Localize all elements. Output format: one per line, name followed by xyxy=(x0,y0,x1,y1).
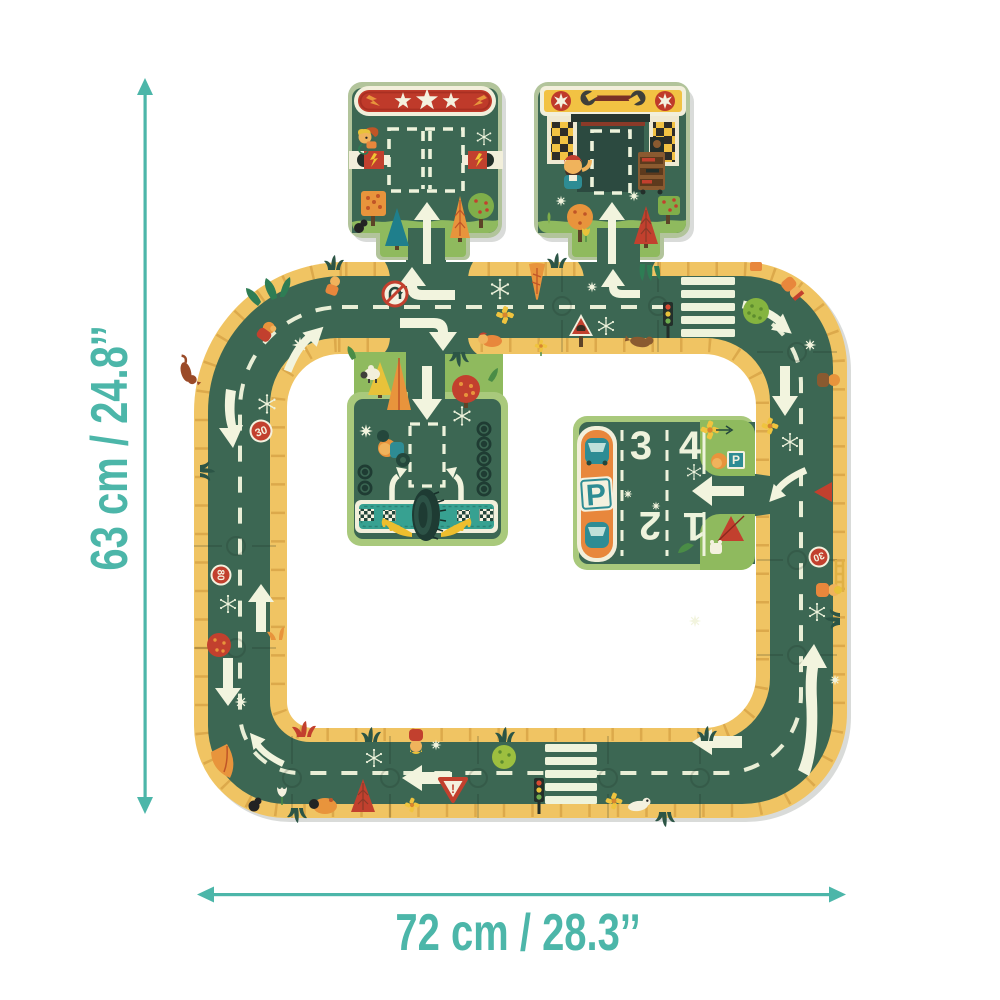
svg-text:1: 1 xyxy=(683,504,705,548)
svg-text:80: 80 xyxy=(215,569,226,581)
svg-text:63 cm / 24.8’’: 63 cm / 24.8’’ xyxy=(80,325,138,570)
svg-text:4: 4 xyxy=(679,424,702,468)
svg-text:3: 3 xyxy=(630,424,652,468)
svg-text:2: 2 xyxy=(639,503,661,547)
svg-text:P: P xyxy=(732,453,740,467)
svg-text:!: ! xyxy=(451,782,455,796)
svg-text:72 cm / 28.3’’: 72 cm / 28.3’’ xyxy=(395,903,640,961)
svg-text:P: P xyxy=(585,478,607,512)
